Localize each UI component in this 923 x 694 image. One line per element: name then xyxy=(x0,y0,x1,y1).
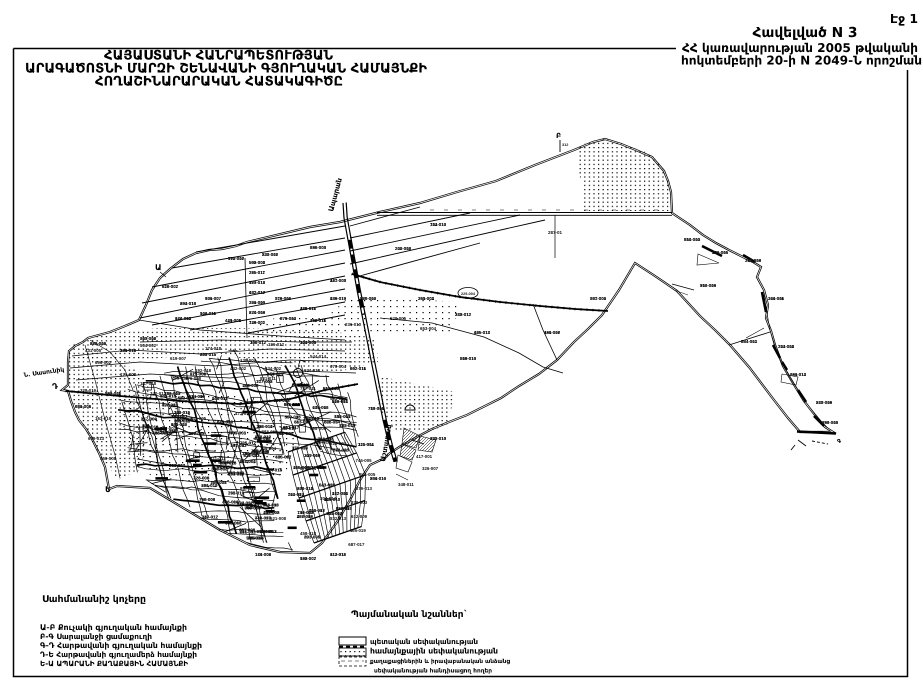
svg-text:570-010: 570-010 xyxy=(228,256,245,261)
svg-text:304-014: 304-014 xyxy=(320,496,337,501)
svg-text:643-001: 643-001 xyxy=(319,483,336,488)
svg-text:236-010: 236-010 xyxy=(345,322,362,327)
svg-text:681-007: 681-007 xyxy=(277,431,294,436)
svg-text:881-001: 881-001 xyxy=(75,404,92,409)
svg-text:655-011: 655-011 xyxy=(275,454,291,459)
svg-text:679-004: 679-004 xyxy=(330,364,347,369)
svg-text:396-013: 396-013 xyxy=(790,372,807,377)
svg-text:121-016: 121-016 xyxy=(712,250,729,255)
svg-text:209-019: 209-019 xyxy=(304,453,321,458)
svg-text:125-011: 125-011 xyxy=(358,442,374,447)
svg-text:536-003: 536-003 xyxy=(310,245,327,250)
svg-text:806-009: 806-009 xyxy=(700,283,717,288)
svg-text:151-007: 151-007 xyxy=(292,446,309,451)
svg-text:749-004: 749-004 xyxy=(260,446,277,451)
svg-text:458-018: 458-018 xyxy=(300,531,317,536)
svg-text:148-012: 148-012 xyxy=(212,396,229,401)
svg-text:247-019: 247-019 xyxy=(816,400,833,405)
svg-text:446-003: 446-003 xyxy=(309,508,326,513)
svg-text:580-003: 580-003 xyxy=(212,466,229,471)
svg-text:476-008: 476-008 xyxy=(185,376,202,381)
svg-text:787-011: 787-011 xyxy=(300,386,316,391)
svg-text:147-018: 147-018 xyxy=(140,381,157,386)
svg-text:174-018: 174-018 xyxy=(205,346,222,351)
svg-text:163-019: 163-019 xyxy=(95,416,112,421)
svg-text:296-019: 296-019 xyxy=(189,431,206,436)
svg-text:406-011: 406-011 xyxy=(243,383,259,388)
svg-text:554-001: 554-001 xyxy=(741,339,758,344)
svg-text:229-004: 229-004 xyxy=(461,292,476,296)
svg-text:316-006: 316-006 xyxy=(275,296,292,301)
svg-text:360-012: 360-012 xyxy=(250,340,267,345)
svg-text:476-006: 476-006 xyxy=(312,405,329,410)
svg-text:894-002: 894-002 xyxy=(237,500,254,505)
svg-text:345-012: 345-012 xyxy=(455,312,472,317)
svg-text:815-002: 815-002 xyxy=(330,441,347,446)
svg-text:619-007: 619-007 xyxy=(170,356,187,361)
svg-text:462-011: 462-011 xyxy=(310,318,326,323)
svg-text:417-001: 417-001 xyxy=(416,454,433,459)
svg-text:223-005: 223-005 xyxy=(262,252,279,257)
svg-text:182-014: 182-014 xyxy=(257,424,274,429)
svg-text:569-008: 569-008 xyxy=(245,506,262,511)
svg-text:606-014: 606-014 xyxy=(297,486,314,491)
svg-text:739-002: 739-002 xyxy=(249,320,266,325)
svg-text:624-018: 624-018 xyxy=(304,368,321,373)
svg-text:818-007: 818-007 xyxy=(162,284,179,289)
svg-text:676-004: 676-004 xyxy=(175,316,192,321)
svg-text:321-010: 321-010 xyxy=(249,300,266,305)
svg-text:297-015: 297-015 xyxy=(200,352,217,357)
svg-text:723-010: 723-010 xyxy=(339,423,356,428)
svg-text:150-008: 150-008 xyxy=(100,456,117,461)
svg-text:177-012: 177-012 xyxy=(249,280,266,285)
svg-text:611-006: 611-006 xyxy=(323,386,339,391)
svg-text:196-012: 196-012 xyxy=(268,342,285,347)
svg-text:844-005: 844-005 xyxy=(359,472,376,477)
svg-text:441-008: 441-008 xyxy=(225,318,242,323)
svg-text:845-012: 845-012 xyxy=(140,336,157,341)
svg-text:551-013: 551-013 xyxy=(201,483,218,488)
svg-text:579-013: 579-013 xyxy=(280,316,297,321)
svg-text:798-006: 798-006 xyxy=(199,497,216,502)
svg-text:234-019: 234-019 xyxy=(249,310,266,315)
svg-text:132-002: 132-002 xyxy=(300,556,317,561)
svg-text:510-003: 510-003 xyxy=(333,448,350,453)
svg-text:213-003: 213-003 xyxy=(745,258,762,263)
svg-text:272-012: 272-012 xyxy=(90,341,107,346)
svg-text:725-017: 725-017 xyxy=(249,270,266,275)
svg-text:534-002: 534-002 xyxy=(265,366,282,371)
svg-text:439-019: 439-019 xyxy=(330,296,347,301)
svg-text:687-017: 687-017 xyxy=(348,542,365,547)
svg-text:625-017: 625-017 xyxy=(474,330,491,335)
svg-text:587-006: 587-006 xyxy=(590,296,607,301)
svg-text:746-005: 746-005 xyxy=(356,458,373,463)
svg-text:699-013: 699-013 xyxy=(88,436,105,441)
svg-text:696-002: 696-002 xyxy=(95,360,112,365)
svg-text:343-005: 343-005 xyxy=(190,416,207,421)
svg-text:612-009: 612-009 xyxy=(351,514,368,519)
svg-text:593-017: 593-017 xyxy=(330,396,347,401)
svg-text:674-004: 674-004 xyxy=(300,466,317,471)
svg-text:740-005: 740-005 xyxy=(255,515,272,520)
svg-text:176-006: 176-006 xyxy=(255,552,272,557)
svg-text:736-007: 736-007 xyxy=(205,296,222,301)
svg-text:292-017: 292-017 xyxy=(255,435,272,440)
svg-text:326-007: 326-007 xyxy=(422,466,439,471)
svg-text:202-012: 202-012 xyxy=(395,246,412,251)
svg-text:863-011: 863-011 xyxy=(105,391,121,396)
svg-text:379-013: 379-013 xyxy=(356,486,373,491)
svg-text:762-012: 762-012 xyxy=(228,491,245,496)
svg-text:367-004: 367-004 xyxy=(141,416,158,421)
svg-text:662-011: 662-011 xyxy=(350,366,366,371)
svg-text:795-003: 795-003 xyxy=(230,430,247,435)
svg-text:379-003: 379-003 xyxy=(351,500,368,505)
svg-text:613-016: 613-016 xyxy=(330,552,347,557)
svg-text:465-019: 465-019 xyxy=(350,528,367,533)
svg-text:840-012: 840-012 xyxy=(217,419,234,424)
svg-text:348-011: 348-011 xyxy=(398,482,414,487)
svg-text:809-015: 809-015 xyxy=(460,356,477,361)
svg-text:469-015: 469-015 xyxy=(300,306,317,311)
svg-text:702-019: 702-019 xyxy=(174,410,191,415)
svg-text:626-014: 626-014 xyxy=(324,420,341,425)
svg-text:743-013: 743-013 xyxy=(288,492,305,497)
svg-text:142-001: 142-001 xyxy=(334,414,351,419)
svg-text:390-003: 390-003 xyxy=(169,463,186,468)
svg-text:832-013: 832-013 xyxy=(330,516,347,521)
svg-text:253-018: 253-018 xyxy=(778,344,795,349)
svg-text:694-014: 694-014 xyxy=(266,468,283,473)
svg-text:465-016: 465-016 xyxy=(544,330,561,335)
svg-text:361-004: 361-004 xyxy=(418,296,435,301)
svg-text:717-004: 717-004 xyxy=(368,406,385,411)
svg-text:735-013: 735-013 xyxy=(430,436,447,441)
svg-text:144-012: 144-012 xyxy=(430,222,447,227)
svg-text:171-008: 171-008 xyxy=(120,372,137,377)
svg-text:615-018: 615-018 xyxy=(228,471,245,476)
svg-text:725-017: 725-017 xyxy=(240,440,257,445)
svg-text:570-002: 570-002 xyxy=(360,296,377,301)
svg-text:287-01: 287-01 xyxy=(548,230,563,235)
svg-text:553-013: 553-013 xyxy=(262,429,279,434)
svg-text:442-002: 442-002 xyxy=(230,366,247,371)
svg-text:531-012: 531-012 xyxy=(174,419,191,424)
svg-text:544-014: 544-014 xyxy=(310,354,327,359)
svg-text:653-004: 653-004 xyxy=(420,326,437,331)
svg-text:121-019: 121-019 xyxy=(120,348,137,353)
svg-text:437-017: 437-017 xyxy=(249,290,266,295)
svg-text:121-008: 121-008 xyxy=(330,278,347,283)
svg-text:538-018: 538-018 xyxy=(220,461,237,466)
svg-text:698-005: 698-005 xyxy=(310,426,327,431)
svg-text:431-005: 431-005 xyxy=(85,348,102,353)
svg-text:364-006: 364-006 xyxy=(768,296,785,301)
svg-text:134-008: 134-008 xyxy=(300,340,317,345)
svg-text:867-004: 867-004 xyxy=(240,459,257,464)
svg-text:765-004: 765-004 xyxy=(246,536,263,541)
svg-text:693-016: 693-016 xyxy=(180,301,197,306)
svg-text:504-002: 504-002 xyxy=(140,343,157,348)
svg-text:326-009: 326-009 xyxy=(193,475,210,480)
svg-text:621-008: 621-008 xyxy=(270,516,287,521)
svg-text:821-011: 821-011 xyxy=(260,376,276,381)
svg-text:802-013: 802-013 xyxy=(261,529,278,534)
svg-text:748-019: 748-019 xyxy=(280,426,297,431)
svg-text:204-015: 204-015 xyxy=(303,416,320,421)
svg-text:657-006: 657-006 xyxy=(239,527,256,532)
svg-text:550-004: 550-004 xyxy=(684,237,701,242)
svg-text:502-008: 502-008 xyxy=(249,260,266,265)
svg-text:250-019: 250-019 xyxy=(242,451,259,456)
svg-text:312: 312 xyxy=(562,143,568,147)
svg-text:106-011: 106-011 xyxy=(200,311,216,316)
svg-text:240-012: 240-012 xyxy=(202,515,219,520)
svg-text:356-018: 356-018 xyxy=(822,420,839,425)
svg-text:514-008: 514-008 xyxy=(189,394,206,399)
